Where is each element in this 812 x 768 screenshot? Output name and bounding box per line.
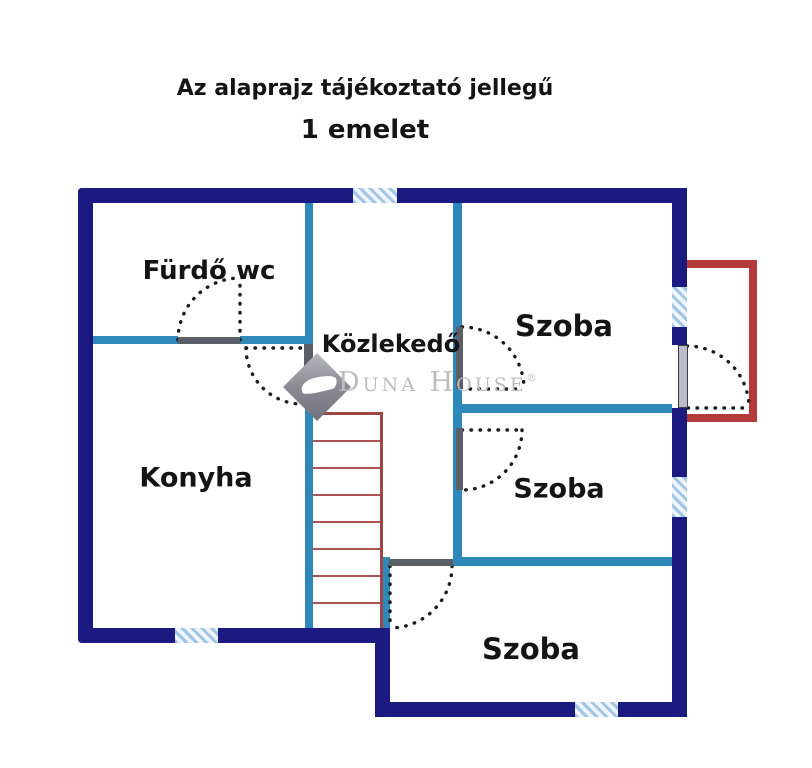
dunahouse-watermark: Duna House® (338, 369, 537, 396)
door-arc-balcony (687, 346, 749, 408)
dunahouse-watermark-text: Duna House (338, 367, 527, 398)
room-label-kitchen: Konyha (139, 463, 252, 494)
door-middle-room (456, 428, 463, 490)
room-label-room-top: Szoba (515, 309, 613, 343)
door-balcony (678, 345, 688, 408)
room-label-room-bottom: Szoba (482, 632, 580, 666)
door-bottom-room (389, 559, 453, 566)
floor-plan-canvas: Az alaprajz tájékoztató jellegű 1 emelet (0, 0, 812, 768)
registered-trademark-symbol: ® (527, 373, 537, 384)
door-bathroom (178, 337, 240, 344)
room-label-room-middle: Szoba (513, 474, 604, 505)
door-arc-bottom-room (390, 566, 452, 628)
room-label-bathroom: Fürdő wc (143, 256, 276, 286)
door-arc-bathroom (178, 278, 240, 340)
room-label-hallway: Közlekedő (322, 330, 460, 358)
